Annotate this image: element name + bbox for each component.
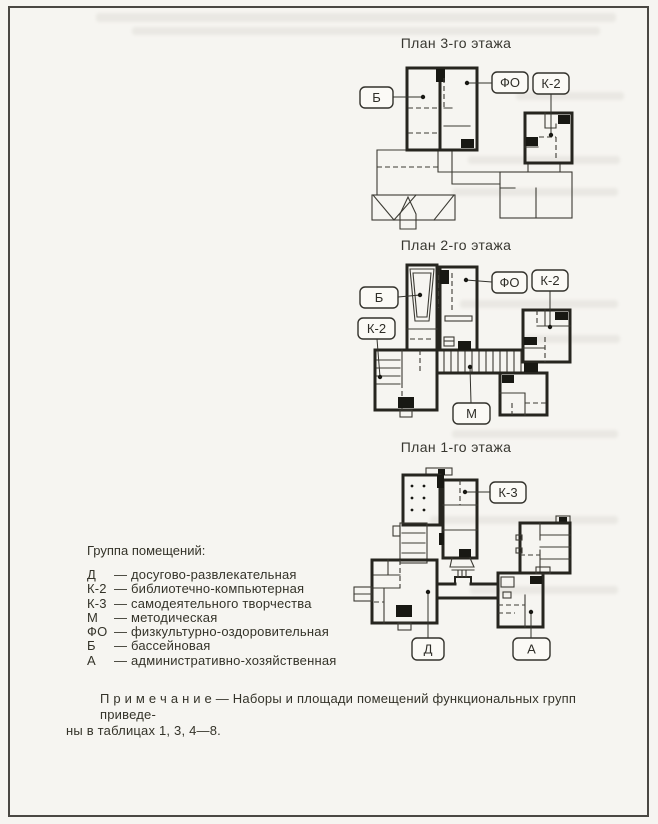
legend-item: Д — досугово-развлекательная: [87, 568, 337, 582]
legend-dash: —: [114, 597, 131, 611]
callout-label: К-2: [367, 321, 386, 336]
floor1-left-annex: [393, 523, 427, 563]
stair-core: [458, 341, 471, 350]
stair-core: [558, 115, 570, 124]
stair-core: [524, 363, 538, 372]
gable-porch: [400, 197, 416, 229]
legend-dash: —: [114, 568, 131, 582]
legend-code: К-3: [87, 597, 114, 611]
note-text: П р и м е ч а н и е — Наборы и площади п…: [66, 691, 594, 723]
plan1-title: План 1-го этажа: [340, 439, 572, 455]
legend-label: методическая: [131, 611, 217, 625]
legend-code: Б: [87, 639, 114, 653]
callout-k2: К-2: [533, 73, 569, 137]
stair-core: [530, 576, 542, 584]
stair-core: [459, 549, 471, 557]
floor2-fo-block: [439, 267, 478, 350]
legend-code: ФО: [87, 625, 114, 639]
floor2-pool-block: [407, 265, 437, 350]
reference-dot: [463, 490, 467, 494]
legend-item: Б — бассейновая: [87, 639, 337, 653]
stair-core: [526, 137, 538, 146]
stair-core: [440, 270, 449, 284]
reference-dot: [426, 590, 430, 594]
legend-item: К-3 — самодеятельного творчества: [87, 597, 337, 611]
stair-core: [439, 533, 444, 545]
note: П р и м е ч а н и е — Наборы и площади п…: [66, 691, 594, 739]
legend-label: физкультурно-оздоровительная: [131, 625, 329, 639]
legend-item: К-2 — библиотечно-компьютерная: [87, 582, 337, 596]
stair-core: [461, 139, 474, 148]
floor-plan-2: Б К-2 ФО К-2 М: [340, 253, 640, 433]
legend-item: М — методическая: [87, 611, 337, 625]
callout-k3: К-3: [463, 482, 526, 503]
callout-d: Д: [412, 590, 444, 660]
floor-plan-1: К-3 Д А: [340, 455, 640, 680]
floor2-k2-right-block: [523, 310, 570, 362]
callout-b: Б: [360, 87, 425, 108]
stair-core: [559, 517, 567, 522]
legend-code: М: [87, 611, 114, 625]
callout-label: ФО: [500, 75, 520, 90]
stair-core: [524, 337, 537, 345]
floor1-hall-block: [403, 468, 452, 525]
callout-label: ФО: [500, 275, 520, 290]
callout-label: Д: [424, 642, 433, 657]
callout-label: Б: [375, 290, 384, 305]
floor3-main-block: [407, 68, 477, 150]
legend-dash: —: [114, 611, 131, 625]
legend-dash: —: [114, 625, 131, 639]
floor2-corridor: [440, 350, 523, 373]
legend-label: административно-хозяйственная: [131, 654, 337, 668]
legend: Группа помещений: Д — досугово-развлекат…: [87, 543, 337, 668]
stair-core: [555, 312, 568, 320]
reference-dot: [421, 95, 425, 99]
legend-heading: Группа помещений:: [87, 543, 337, 558]
callout-label: Б: [372, 90, 381, 105]
legend-item: А — административно-хозяйственная: [87, 654, 337, 668]
scanned-page: План 3-го этажа: [0, 0, 658, 824]
reference-dot: [465, 81, 469, 85]
legend-label: бассейновая: [131, 639, 211, 653]
reference-dot: [468, 365, 472, 369]
reference-dot: [378, 375, 382, 379]
reference-dot: [529, 610, 533, 614]
reference-dot: [548, 325, 552, 329]
floor2-k2-left-block: [375, 350, 437, 417]
legend-dash: —: [114, 654, 131, 668]
floor1-k3-block: [437, 475, 477, 567]
entrance-porch: [455, 577, 471, 584]
legend-label: самодеятельного творчества: [131, 597, 312, 611]
callout-label: К-2: [541, 76, 560, 91]
stair-core: [396, 605, 412, 617]
stair-core: [398, 397, 414, 408]
legend-code: Д: [87, 568, 114, 582]
legend-label: досугово-развлекательная: [131, 568, 297, 582]
callout-fo: ФО: [464, 272, 527, 293]
callout-label: М: [466, 406, 477, 421]
column-grid: [411, 485, 426, 512]
floor1-d-block: [354, 560, 437, 630]
floor1-mid-right-block: [516, 516, 570, 573]
legend-code: К-2: [87, 582, 114, 596]
note-text: ны в таблицах 1, 3, 4—8.: [66, 723, 594, 739]
legend-label: библиотечно-компьютерная: [131, 582, 304, 596]
reference-dot: [418, 293, 422, 297]
bleedthrough-artifact: [132, 27, 600, 35]
floor1-a-block: [498, 567, 550, 627]
callout-label: К-2: [540, 273, 559, 288]
legend-dash: —: [114, 639, 131, 653]
legend-item: ФО — физкультурно-оздоровительная: [87, 625, 337, 639]
legend-dash: —: [114, 582, 131, 596]
legend-code: А: [87, 654, 114, 668]
bleedthrough-artifact: [96, 13, 616, 22]
stair-core: [437, 475, 444, 488]
floor-plan-3: Б ФО К-2: [340, 48, 640, 236]
reference-dot: [464, 278, 468, 282]
reference-dot: [549, 133, 553, 137]
stair-core: [502, 375, 514, 383]
floor1-corridor-porch: [437, 570, 498, 598]
callout-fo: ФО: [465, 72, 528, 93]
callout-label: К-3: [498, 485, 517, 500]
callout-label: А: [527, 642, 536, 657]
floor3-k2-block: [525, 113, 572, 163]
plan2-title: План 2-го этажа: [340, 237, 572, 253]
